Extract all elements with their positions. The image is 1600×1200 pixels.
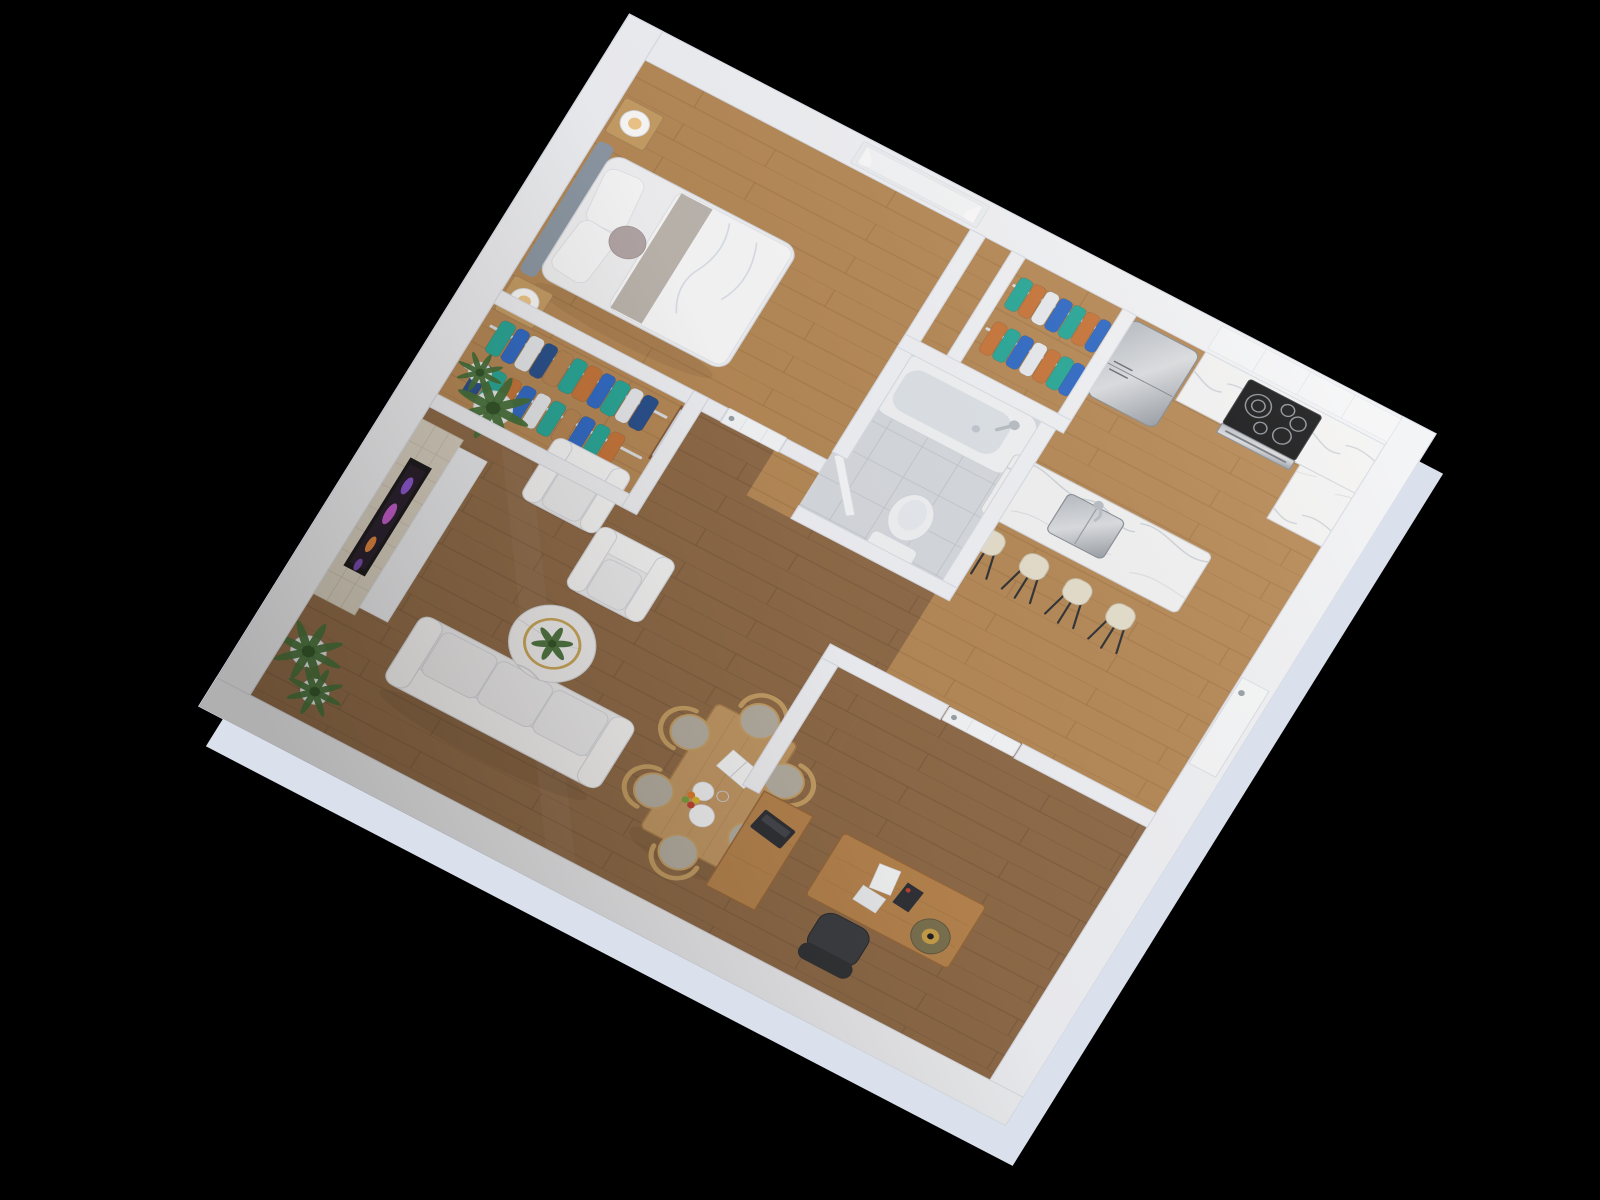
plan bbox=[199, 14, 1436, 1126]
lighting-overlay bbox=[199, 14, 1436, 1126]
floorplan-render bbox=[0, 0, 1600, 1200]
